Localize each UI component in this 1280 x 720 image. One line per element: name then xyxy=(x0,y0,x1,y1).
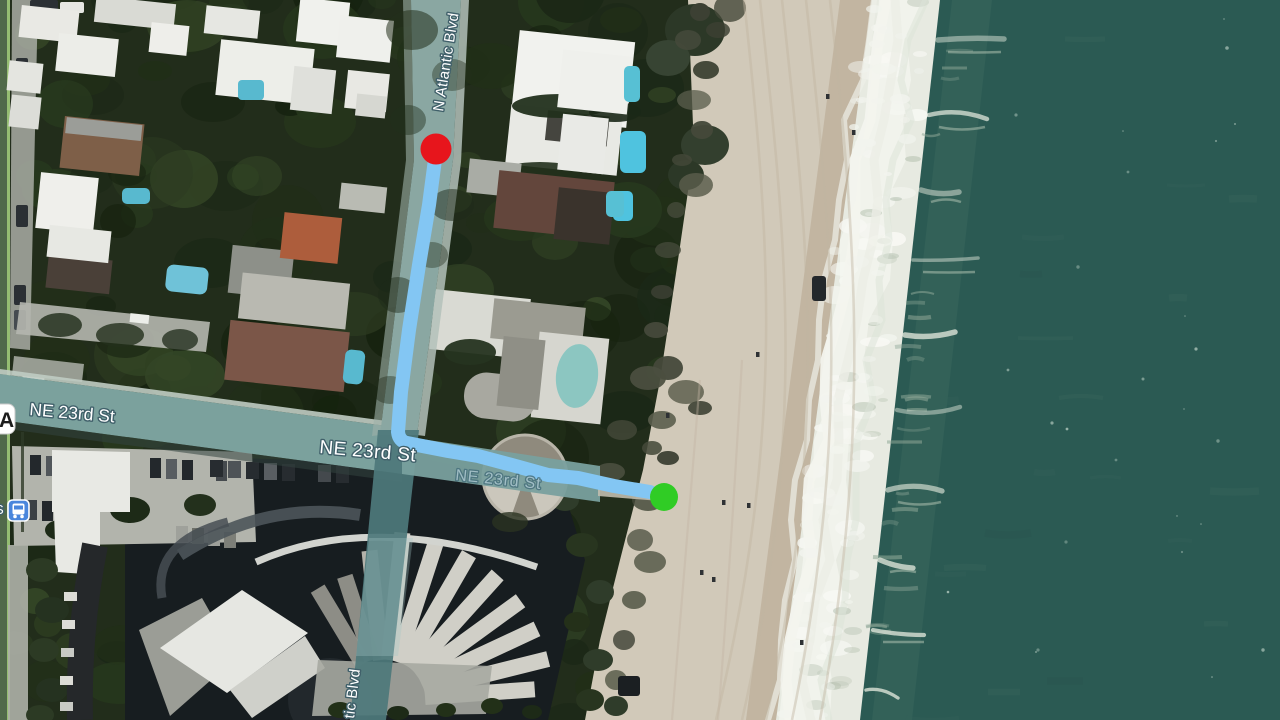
svg-text:A: A xyxy=(0,409,14,432)
svg-text:S: S xyxy=(0,502,4,517)
